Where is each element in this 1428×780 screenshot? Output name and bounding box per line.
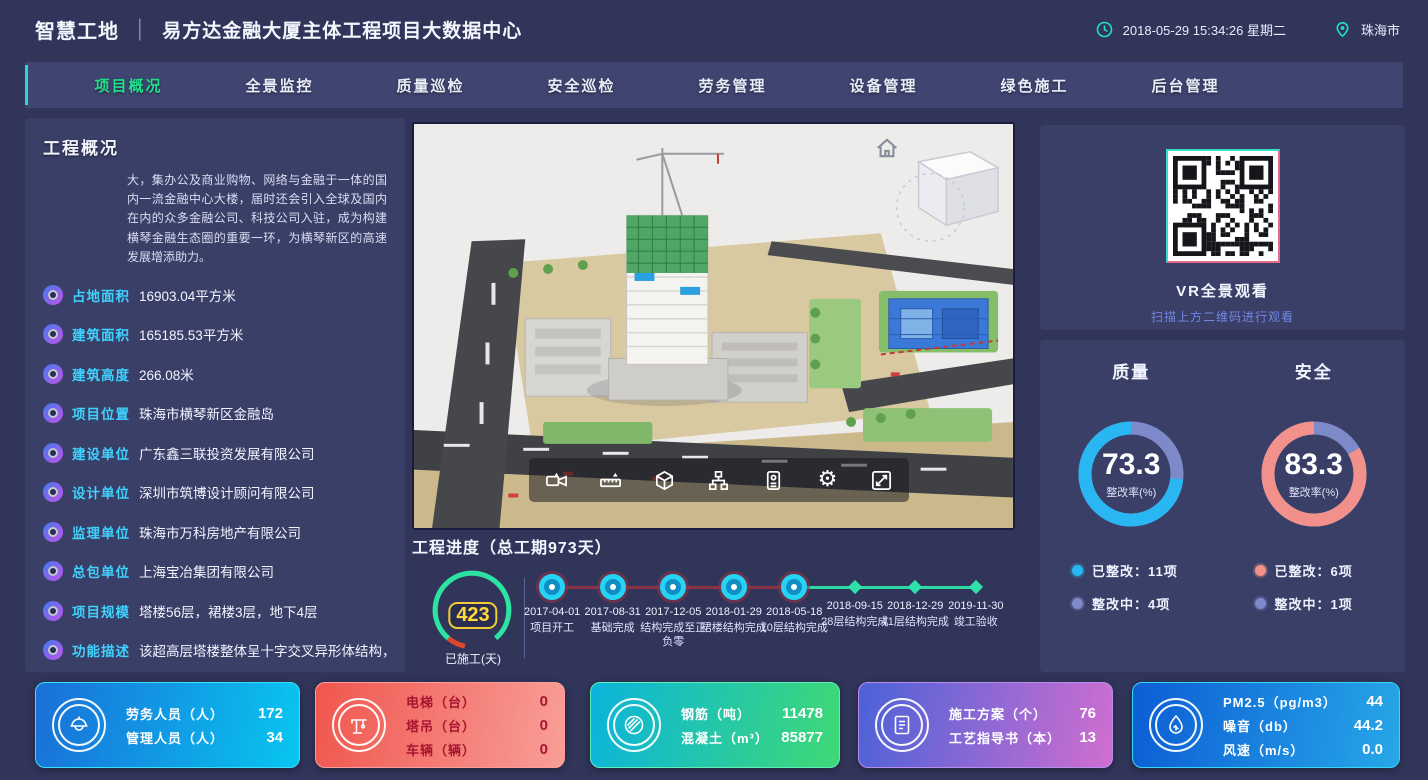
tab-quality-inspection[interactable]: 质量巡检 xyxy=(355,75,506,96)
milestone-node-done xyxy=(660,574,686,600)
rebar-icon xyxy=(607,698,661,752)
stat-row: 电梯（台）0 xyxy=(406,692,548,711)
safety-title: 安全 xyxy=(1295,358,1333,383)
legend-dot xyxy=(1072,565,1083,576)
clock-icon xyxy=(1096,21,1113,38)
tab-labor-management[interactable]: 劳务管理 xyxy=(657,75,808,96)
page-title: 易方达金融大厦主体工程项目大数据中心 xyxy=(162,16,522,43)
stat-row: 噪音（db）44.2 xyxy=(1223,716,1383,735)
row-bullet-icon xyxy=(43,561,63,581)
brand-logo-text: 智慧工地 xyxy=(35,15,119,44)
overview-row-land-area: 占地面积16903.04平方米 xyxy=(43,282,389,308)
stat-row: 风速（m/s）0.0 xyxy=(1223,740,1383,759)
materials-stats-card: 钢筋（吨）11478 混凝土（m³）85877 xyxy=(590,682,840,768)
city-text: 珠海市 xyxy=(1361,20,1400,39)
top-bar: 智慧工地 │ 易方达金融大厦主体工程项目大数据中心 2018-05-29 15:… xyxy=(0,0,1428,58)
overview-row-contractor: 总包单位上海宝冶集团有限公司 xyxy=(43,558,389,584)
qr-code xyxy=(1166,149,1280,263)
stat-row: 工艺指导书（本）13 xyxy=(949,728,1096,747)
document-icon xyxy=(875,698,929,752)
safety-value: 83.3 xyxy=(1285,448,1343,482)
progress-title: 工程进度（总工期973天） xyxy=(412,534,1015,558)
tower-crane-icon xyxy=(332,698,386,752)
overview-row-designer: 设计单位深圳市筑博设计顾问有限公司 xyxy=(43,479,389,505)
row-bullet-icon xyxy=(43,522,63,542)
hierarchy-icon[interactable] xyxy=(702,463,736,497)
main-nav: 项目概况 全景监控 质量巡检 安全巡检 劳务管理 设备管理 绿色施工 后台管理 xyxy=(25,62,1403,108)
row-bullet-icon xyxy=(43,640,63,660)
stat-row: PM2.5（pg/m3）44 xyxy=(1223,692,1383,711)
quality-legend: 已整改：11项 整改中：4项 xyxy=(1040,561,1178,613)
vr-subtitle: 扫描上方二维码进行观看 xyxy=(1040,308,1405,325)
location-pin-icon xyxy=(1334,21,1351,38)
datetime-text: 2018-05-29 15:34:26 星期二 xyxy=(1123,20,1286,39)
safety-center-label: 整改率(%) xyxy=(1289,484,1339,500)
legend-dot xyxy=(1255,565,1266,576)
overview-items: 占地面积16903.04平方米 建筑面积165185.53平方米 建筑高度266… xyxy=(43,282,389,664)
overview-row-developer: 建设单位广东鑫三联投资发展有限公司 xyxy=(43,440,389,466)
environment-stats-card: PM2.5（pg/m3）44 噪音（db）44.2 风速（m/s）0.0 xyxy=(1132,682,1400,768)
tab-panorama-monitor[interactable]: 全景监控 xyxy=(204,75,355,96)
milestone: 2019-11-30竣工验收 xyxy=(940,574,1012,629)
vr-title: VR全景观看 xyxy=(1040,280,1405,301)
legend-dot xyxy=(1255,598,1266,609)
quality-donut-chart: 73.3 整改率(%) xyxy=(1066,409,1196,539)
quality-center-label: 整改率(%) xyxy=(1106,484,1156,500)
milestone-node-pending xyxy=(848,580,862,594)
row-bullet-icon xyxy=(43,285,63,305)
stat-row: 塔吊（台）0 xyxy=(406,716,548,735)
legend-item: 整改中：4项 xyxy=(1072,594,1178,613)
title-divider: │ xyxy=(135,19,146,40)
id-card-icon[interactable] xyxy=(756,463,790,497)
legend-item: 已整改：11项 xyxy=(1072,561,1178,580)
milestone-node-pending xyxy=(908,580,922,594)
milestone-node-done xyxy=(600,574,626,600)
progress-section: 工程进度（总工期973天） 423 已施工(天) 2017-04-01项目开工 … xyxy=(412,534,1015,674)
gear-icon[interactable]: ⚙ xyxy=(811,463,845,497)
documents-stats-card: 施工方案（个）76 工艺指导书（本）13 xyxy=(858,682,1113,768)
overview-row-location: 项目位置珠海市横琴新区金融岛 xyxy=(43,400,389,426)
stat-row: 劳务人员（人）172 xyxy=(126,704,283,723)
legend-dot xyxy=(1072,598,1083,609)
quality-chart-column: 质量 73.3 整改率(%) 已整改：11项 整改中：4项 xyxy=(1040,340,1223,672)
stat-row: 钢筋（吨）11478 xyxy=(681,704,823,723)
milestone-node-pending xyxy=(969,580,983,594)
milestone-node-done xyxy=(539,574,565,600)
row-bullet-icon xyxy=(43,601,63,621)
tab-green-construction[interactable]: 绿色施工 xyxy=(959,75,1110,96)
stat-row: 车辆（辆）0 xyxy=(406,740,548,759)
tab-admin[interactable]: 后台管理 xyxy=(1110,75,1261,96)
fullscreen-icon[interactable] xyxy=(865,463,899,497)
legend-item: 已整改：6项 xyxy=(1255,561,1353,580)
overview-title: 工程概况 xyxy=(43,134,389,159)
stat-row: 管理人员（人）34 xyxy=(126,728,283,747)
project-overview-panel: 工程概况 大，集办公及商业购物、网络与金融于一体的国内一流金融中心大楼，届时还会… xyxy=(25,118,405,672)
quality-title: 质量 xyxy=(1112,358,1150,383)
vr-panorama-panel: VR全景观看 扫描上方二维码进行观看 xyxy=(1040,125,1405,330)
viewport-toolbar: ⚙ xyxy=(529,458,909,502)
video-camera-icon[interactable] xyxy=(539,463,573,497)
overview-row-building-height: 建筑高度266.08米 xyxy=(43,361,389,387)
safety-chart-column: 安全 83.3 整改率(%) 已整改：6项 整改中：1项 xyxy=(1223,340,1406,672)
quality-value: 73.3 xyxy=(1102,448,1160,482)
days-done-value: 423 xyxy=(448,602,497,629)
top-bar-status: 2018-05-29 15:34:26 星期二 珠海市 xyxy=(1096,20,1400,39)
row-bullet-icon xyxy=(43,403,63,423)
bim-3d-viewport[interactable]: ⚙ xyxy=(412,122,1015,530)
milestone-node-done xyxy=(781,574,807,600)
row-bullet-icon xyxy=(43,324,63,344)
env-monitor-icon xyxy=(1149,698,1203,752)
days-gauge: 423 已施工(天) xyxy=(428,566,518,670)
cube-3d-icon[interactable] xyxy=(648,463,682,497)
quality-safety-panel: 质量 73.3 整改率(%) 已整改：11项 整改中：4项 安全 xyxy=(1040,340,1405,672)
overview-row-building-area: 建筑面积165185.53平方米 xyxy=(43,321,389,347)
row-bullet-icon xyxy=(43,443,63,463)
safety-donut-chart: 83.3 整改率(%) xyxy=(1249,409,1379,539)
days-done-label: 已施工(天) xyxy=(445,650,501,667)
labor-stats-card: 劳务人员（人）172 管理人员（人）34 xyxy=(35,682,300,768)
legend-item: 整改中：1项 xyxy=(1255,594,1353,613)
stat-row: 施工方案（个）76 xyxy=(949,704,1096,723)
row-bullet-icon xyxy=(43,482,63,502)
worker-icon xyxy=(52,698,106,752)
equipment-stats-card: 电梯（台）0 塔吊（台）0 车辆（辆）0 xyxy=(315,682,565,768)
tab-project-overview[interactable]: 项目概况 xyxy=(53,75,204,96)
home-view-icon[interactable] xyxy=(873,134,901,162)
stat-row: 混凝土（m³）85877 xyxy=(681,728,823,747)
milestone-node-done xyxy=(721,574,747,600)
safety-legend: 已整改：6项 整改中：1项 xyxy=(1223,561,1353,613)
overview-row-scale: 项目规模塔楼56层，裙楼3层，地下4层 xyxy=(43,598,389,624)
row-bullet-icon xyxy=(43,364,63,384)
milestone-timeline: 2017-04-01项目开工 2017-08-31基础完成 2017-12-05… xyxy=(542,574,1004,672)
measure-tool-icon[interactable] xyxy=(593,463,627,497)
overview-row-supervisor: 监理单位珠海市万科房地产有限公司 xyxy=(43,519,389,545)
overview-row-function: 功能描述该超高层塔楼整体呈十字交叉异形体结构，屋面为 xyxy=(43,637,389,663)
smart-site-dashboard: 智慧工地 │ 易方达金融大厦主体工程项目大数据中心 2018-05-29 15:… xyxy=(0,0,1428,780)
overview-description: 大，集办公及商业购物、网络与金融于一体的国内一流金融中心大楼，届时还会引入全球及… xyxy=(127,171,387,267)
tab-safety-inspection[interactable]: 安全巡检 xyxy=(506,75,657,96)
tab-equipment-management[interactable]: 设备管理 xyxy=(808,75,959,96)
